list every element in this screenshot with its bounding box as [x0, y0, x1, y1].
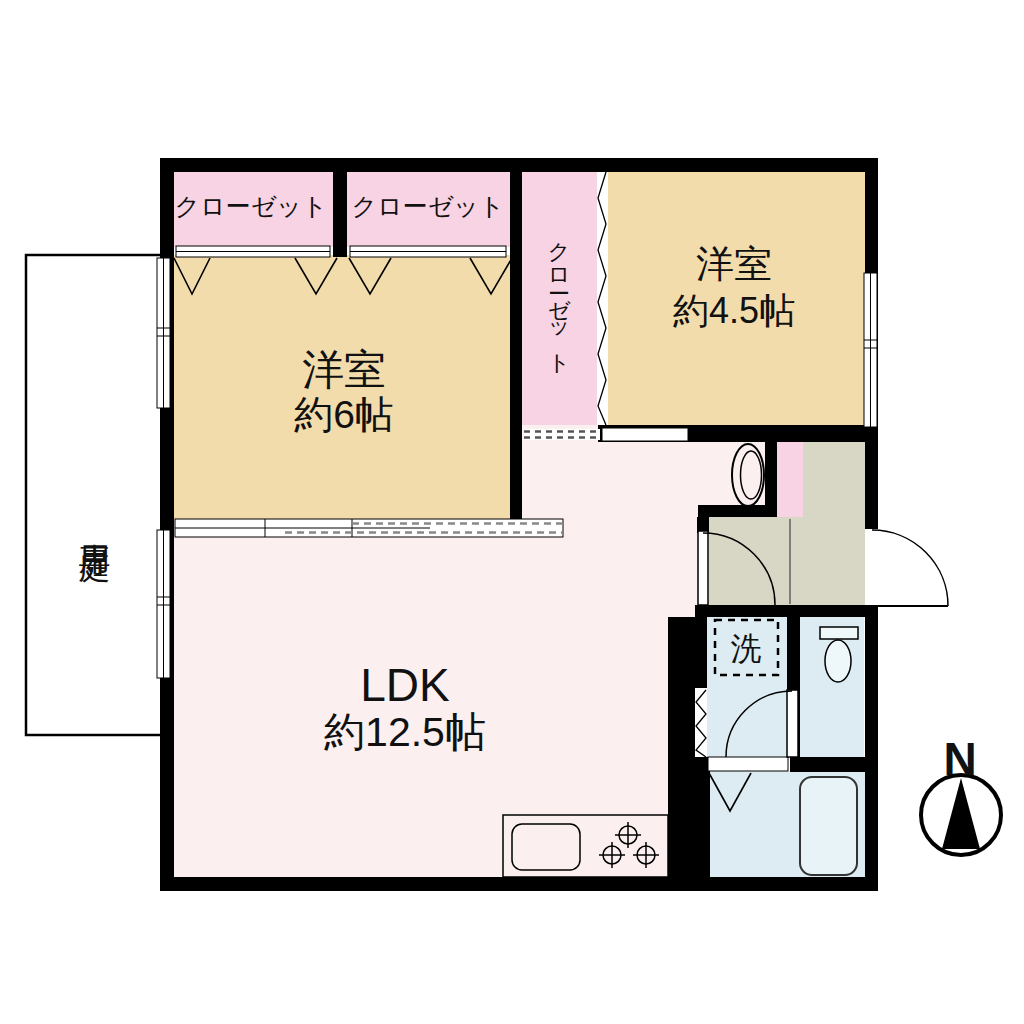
closet-top-left-label: クローゼット [175, 194, 328, 219]
room-ldk-size: 約12.5帖 [324, 712, 486, 753]
kitchen-counter [503, 815, 668, 877]
floor-plan-canvas: 専用庭 クローゼット クローゼット クローゼット 洋室 約6帖 洋室 約4.5帖… [0, 0, 1024, 1024]
window-west-ldk-icon [157, 530, 170, 678]
accordion-door-strip [597, 170, 608, 425]
closet-top-middle-label: クローゼット [352, 194, 505, 219]
shoe-cabinet [777, 433, 803, 517]
room-western-6-size: 約6帖 [294, 395, 394, 434]
room-ldk-label: LDK [360, 662, 449, 708]
laundry-label: 洗 [731, 633, 762, 664]
closet-hall-label: クローゼット [548, 227, 570, 365]
kitchen-sink-icon [512, 824, 580, 870]
compass-north-label: N [943, 736, 976, 782]
entrance-hall-lower [709, 517, 803, 605]
bathtub-icon [800, 777, 857, 875]
floor-plan-drawing [0, 0, 1024, 1024]
window-west-bedroom-icon [157, 258, 170, 408]
room-western-45-label: 洋室 [696, 245, 772, 283]
window-east-bedroom-icon [864, 273, 877, 427]
room-western-6-label: 洋室 [302, 349, 386, 391]
compass-icon [921, 775, 1001, 855]
garden-label: 専用庭 [79, 518, 111, 527]
garden-area [26, 255, 162, 735]
washroom-accordion-icon [695, 688, 707, 757]
entrance-hall [803, 433, 865, 605]
entrance-door [865, 529, 948, 606]
room-western-45-size: 約4.5帖 [673, 293, 795, 329]
basin-icon [732, 444, 764, 506]
